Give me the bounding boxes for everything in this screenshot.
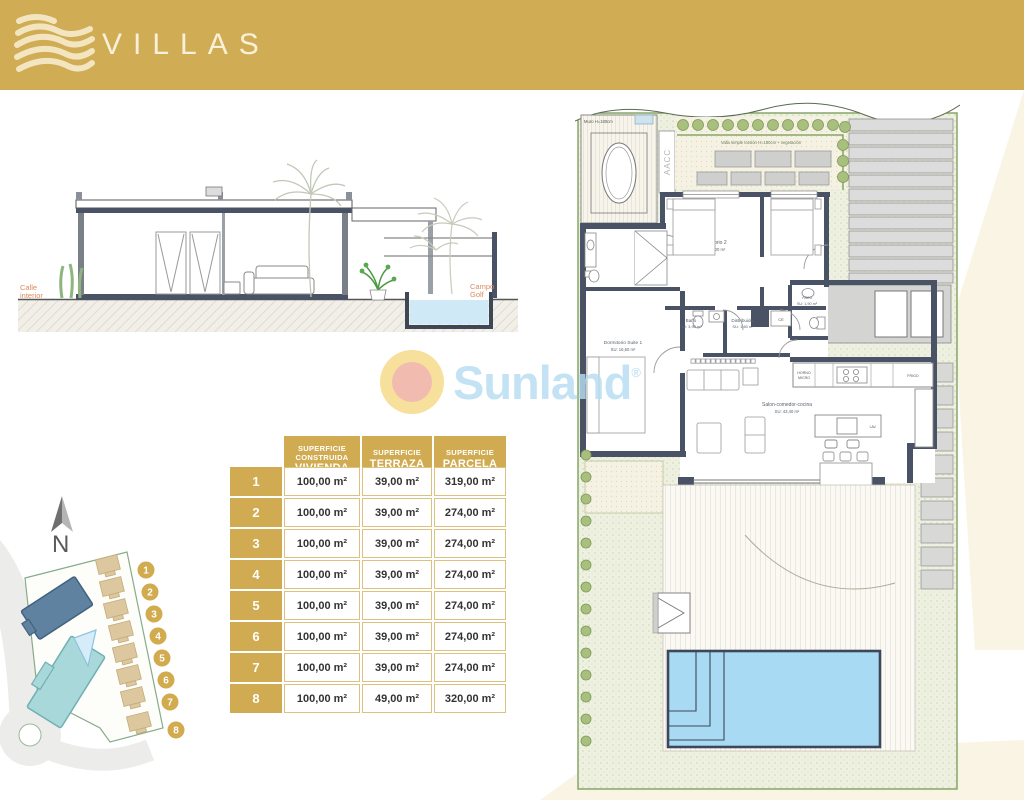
table-cell: 319,00 m² — [434, 467, 506, 496]
svg-text:SU: 1,60 m²: SU: 1,60 m² — [732, 324, 754, 329]
lav-label: LAV. — [870, 425, 877, 429]
plot-badge: 8 — [173, 726, 179, 737]
green-plant — [360, 263, 397, 300]
table-cell: 100,00 m² — [284, 467, 360, 496]
table-row-villa-number: 1 — [230, 467, 282, 496]
background-wedge-top-right — [954, 90, 1024, 650]
plot-badge: 6 — [163, 676, 169, 687]
table-cell: 320,00 m² — [434, 684, 506, 713]
sun-icon — [380, 350, 444, 414]
interior-doors — [156, 232, 220, 294]
suite-bed — [587, 357, 645, 433]
table-cell: 100,00 m² — [284, 591, 360, 620]
table-cell: 39,00 m² — [362, 498, 432, 527]
table-cell: 274,00 m² — [434, 591, 506, 620]
svg-text:SU: 43,40 m²: SU: 43,40 m² — [775, 409, 800, 414]
sofa — [687, 370, 739, 390]
svg-text:interior: interior — [20, 291, 43, 300]
storage-box — [911, 291, 943, 337]
side-table — [743, 368, 758, 385]
table-row-villa-number: 2 — [230, 498, 282, 527]
bano-label: Baño — [686, 318, 697, 323]
table-row-villa-number: 4 — [230, 560, 282, 589]
road — [0, 550, 28, 728]
site-plan: N 1 2 3 4 5 6 7 8 — [0, 490, 215, 800]
table-cell: 39,00 m² — [362, 622, 432, 651]
storage-box — [875, 291, 907, 337]
distribuidor-label: Distribuidor — [731, 318, 755, 323]
table-row-villa-number: 7 — [230, 653, 282, 682]
aacc-unit: AACC — [659, 131, 675, 193]
table-cell: 39,00 m² — [362, 467, 432, 496]
fence-garden-strip: Valla simple torsión H=180cm + vegetació… — [675, 117, 851, 190]
table-row-villa-number: 6 — [230, 622, 282, 651]
svg-text:SU: 16,60 m²: SU: 16,60 m² — [611, 347, 636, 352]
table-cell: 274,00 m² — [434, 653, 506, 682]
table-cell: 100,00 m² — [284, 529, 360, 558]
plot-badge: 4 — [155, 632, 161, 643]
waves-logo-icon — [14, 12, 96, 78]
outdoor-shower — [653, 593, 690, 633]
entry-patio: Muro H=180cm — [581, 115, 657, 223]
table-cell: 39,00 m² — [362, 653, 432, 682]
svg-text:SU: 1,90 m²: SU: 1,90 m² — [797, 302, 818, 306]
table-cell: 274,00 m² — [434, 560, 506, 589]
frigo-label: FRIGO — [907, 374, 919, 378]
table-cell: 100,00 m² — [284, 560, 360, 589]
garden-patch — [585, 461, 663, 513]
header-bar: VILLAS — [0, 0, 1024, 90]
table-cell: 100,00 m² — [284, 498, 360, 527]
plot-badge: 7 — [167, 698, 173, 709]
svg-text:MICRO: MICRO — [798, 376, 810, 380]
table-cell: 39,00 m² — [362, 591, 432, 620]
horno-label: HORNO — [797, 371, 811, 375]
fence-label: Valla simple torsión H=180cm + vegetació… — [721, 140, 802, 145]
table-row-villa-number: 3 — [230, 529, 282, 558]
aseo-label: Aseo — [802, 295, 813, 300]
north-arrow-icon: N — [51, 496, 73, 558]
bathtub — [602, 143, 636, 203]
plot-badge: 1 — [143, 566, 149, 577]
table-cell: 274,00 m² — [434, 622, 506, 651]
page-title: VILLAS — [102, 28, 270, 62]
table-cell: 274,00 m² — [434, 529, 506, 558]
elevation-sofa — [224, 266, 314, 294]
plot-badge: 5 — [159, 654, 165, 665]
plot-badge: 3 — [151, 610, 157, 621]
table-cell: 100,00 m² — [284, 684, 360, 713]
table-cell: 39,00 m² — [362, 529, 432, 558]
table-row-villa-number: 5 — [230, 591, 282, 620]
svg-text:AACC: AACC — [663, 149, 672, 175]
floor-plan: Muro H=180cm AACC Valla simple torsión H… — [575, 95, 960, 795]
table-cell: 49,00 m² — [362, 684, 432, 713]
table-cell: 100,00 m² — [284, 622, 360, 651]
armchair — [697, 423, 721, 453]
table-cell: 274,00 m² — [434, 498, 506, 527]
plot-badge: 2 — [147, 588, 153, 599]
table-row-villa-number: 8 — [230, 684, 282, 713]
suite-label: Dormitorio Suite 1 — [604, 340, 643, 346]
ce-unit: CE — [771, 311, 791, 326]
areas-table: VILLA SUPERFICIE CONSTRUIDA VIVIENDA SUP… — [230, 436, 500, 713]
tv-bench — [691, 359, 755, 363]
svg-text:N: N — [52, 531, 69, 558]
svg-text:CE: CE — [778, 317, 784, 322]
svg-text:SU: 3,90 m²: SU: 3,90 m² — [680, 324, 702, 329]
pool — [668, 651, 880, 747]
elevation-section-drawing: Calle interior Campo Golf — [18, 132, 518, 337]
elevation-pool — [410, 300, 488, 324]
salon-label: Salon-comedor-cocina — [762, 402, 812, 408]
muro-label: Muro H=180cm — [584, 119, 613, 124]
table-cell: 39,00 m² — [362, 560, 432, 589]
table-cell: 100,00 m² — [284, 653, 360, 682]
svg-text:Golf: Golf — [470, 290, 485, 299]
